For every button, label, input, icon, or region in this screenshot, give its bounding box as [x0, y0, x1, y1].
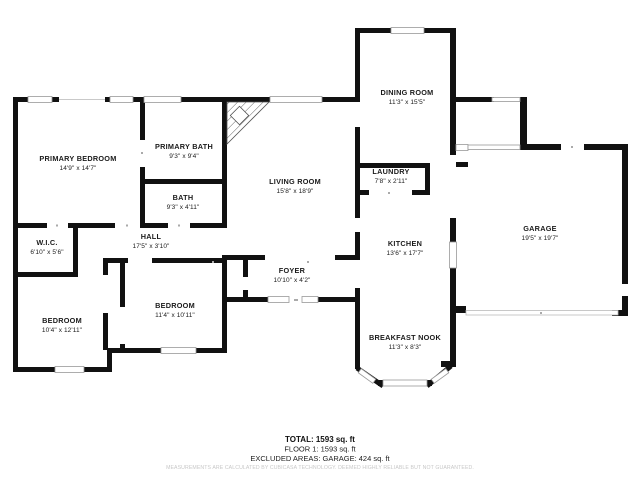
summary-floor1: FLOOR 1: 1593 sq. ft: [284, 445, 356, 454]
windows: [28, 28, 520, 373]
room-dims-primary-bedroom: 14'9" x 14'7": [60, 165, 98, 172]
room-label-bedroom-right: BEDROOM: [155, 301, 195, 310]
bay-window: [357, 366, 451, 386]
floor-plan-page: PRIMARY BEDROOM 14'9" x 14'7" PRIMARY BA…: [0, 0, 640, 480]
door-ticks: [56, 146, 573, 314]
room-dims-garage: 19'5" x 19'7": [522, 235, 560, 242]
room-label-primary-bedroom: PRIMARY BEDROOM: [39, 154, 116, 163]
summary-excluded: EXCLUDED AREAS: GARAGE: 424 sq. ft: [250, 454, 390, 463]
area-summary: TOTAL: 1593 sq. ft FLOOR 1: 1593 sq. ft …: [166, 435, 474, 471]
room-dims-wic: 6'10" x 5'6": [30, 249, 64, 256]
room-dims-hall: 17'5" x 3'10": [133, 243, 171, 250]
room-dims-laundry: 7'8" x 2'11": [375, 178, 408, 185]
room-dims-kitchen: 13'6" x 17'7": [387, 250, 425, 257]
room-label-foyer: FOYER: [279, 266, 306, 275]
room-label-living-room: LIVING ROOM: [269, 177, 321, 186]
room-dims-bedroom-left: 10'4" x 12'11": [42, 327, 83, 334]
room-dims-living-room: 15'8" x 18'9": [277, 188, 315, 195]
summary-disclaimer: MEASUREMENTS ARE CALCULATED BY CUBICASA …: [166, 465, 474, 471]
room-dims-foyer: 10'10" x 4'2": [274, 277, 312, 284]
room-label-bedroom-left: BEDROOM: [42, 316, 82, 325]
room-dims-primary-bath: 9'3" x 9'4": [169, 153, 199, 160]
room-dims-breakfast-nook: 11'3" x 8'3": [389, 344, 422, 351]
room-dims-bedroom-right: 11'4" x 10'11": [155, 312, 195, 319]
room-dims-bath: 9'3" x 4'11": [167, 204, 200, 211]
floor-plan-drawing: PRIMARY BEDROOM 14'9" x 14'7" PRIMARY BA…: [0, 0, 640, 480]
room-label-wic: W.I.C.: [36, 238, 57, 247]
fireplace-icon: [227, 102, 269, 144]
room-label-dining-room: DINING ROOM: [380, 88, 433, 97]
room-label-primary-bath: PRIMARY BATH: [155, 142, 213, 151]
room-label-breakfast-nook: BREAKFAST NOOK: [369, 333, 441, 342]
room-dims-dining-room: 11'3" x 15'5": [389, 99, 426, 106]
room-label-bath: BATH: [173, 193, 194, 202]
room-label-kitchen: KITCHEN: [388, 239, 422, 248]
room-label-laundry: LAUNDRY: [372, 167, 409, 176]
walls: [13, 28, 628, 372]
room-label-garage: GARAGE: [523, 224, 557, 233]
summary-total: TOTAL: 1593 sq. ft: [285, 435, 355, 444]
room-label-hall: HALL: [141, 232, 162, 241]
